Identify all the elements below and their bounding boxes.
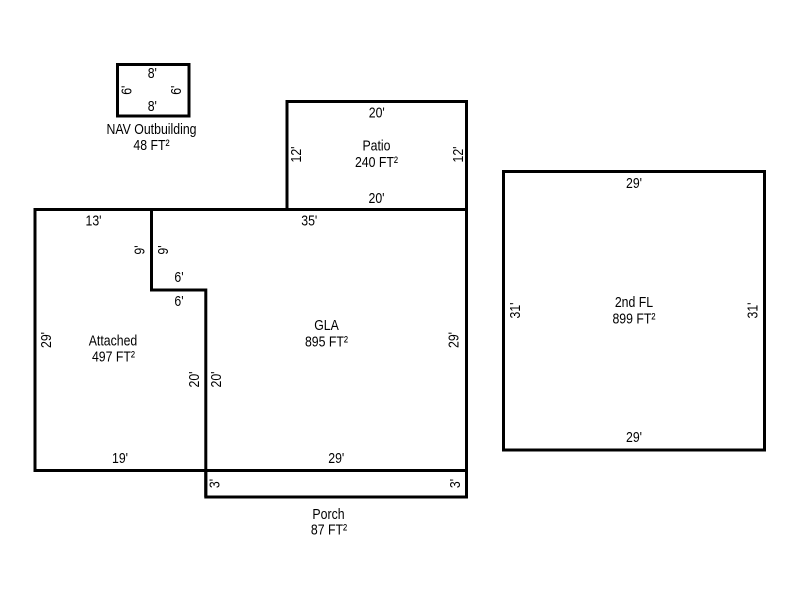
svg-text:20': 20' (368, 190, 384, 207)
svg-text:8': 8' (148, 65, 157, 82)
svg-text:2nd FL: 2nd FL (615, 294, 653, 311)
svg-text:Patio: Patio (362, 138, 390, 155)
svg-text:8': 8' (148, 98, 157, 115)
svg-text:6': 6' (168, 86, 185, 95)
svg-text:6': 6' (119, 86, 136, 95)
svg-text:31': 31' (507, 302, 524, 318)
svg-text:29': 29' (446, 332, 463, 348)
svg-text:6': 6' (174, 293, 183, 310)
svg-text:20': 20' (186, 371, 203, 387)
svg-text:87 FT²: 87 FT² (311, 522, 347, 539)
svg-text:Porch: Porch (312, 506, 344, 523)
svg-text:13': 13' (85, 213, 101, 230)
svg-text:Attached: Attached (89, 333, 138, 350)
svg-text:497 FT²: 497 FT² (92, 349, 135, 366)
svg-text:20': 20' (369, 104, 385, 121)
svg-text:48 FT²: 48 FT² (133, 137, 169, 154)
svg-text:29': 29' (328, 450, 344, 467)
svg-text:6': 6' (174, 269, 183, 286)
svg-text:19': 19' (112, 450, 128, 467)
svg-text:9': 9' (155, 245, 172, 254)
svg-text:899 FT²: 899 FT² (612, 311, 655, 328)
svg-text:240 FT²: 240 FT² (355, 154, 398, 171)
svg-text:29': 29' (626, 429, 642, 446)
svg-text:12': 12' (450, 146, 467, 162)
svg-text:9': 9' (131, 245, 148, 254)
svg-text:895 FT²: 895 FT² (305, 334, 348, 351)
svg-text:35': 35' (301, 213, 317, 230)
svg-text:12': 12' (288, 146, 305, 162)
svg-text:31': 31' (745, 302, 762, 318)
svg-text:3': 3' (447, 479, 464, 488)
svg-text:20': 20' (208, 371, 225, 387)
svg-text:3': 3' (206, 479, 223, 488)
svg-text:29': 29' (38, 332, 55, 348)
svg-text:GLA: GLA (314, 317, 339, 334)
svg-text:NAV Outbuilding: NAV Outbuilding (106, 121, 196, 138)
svg-text:29': 29' (626, 175, 642, 192)
